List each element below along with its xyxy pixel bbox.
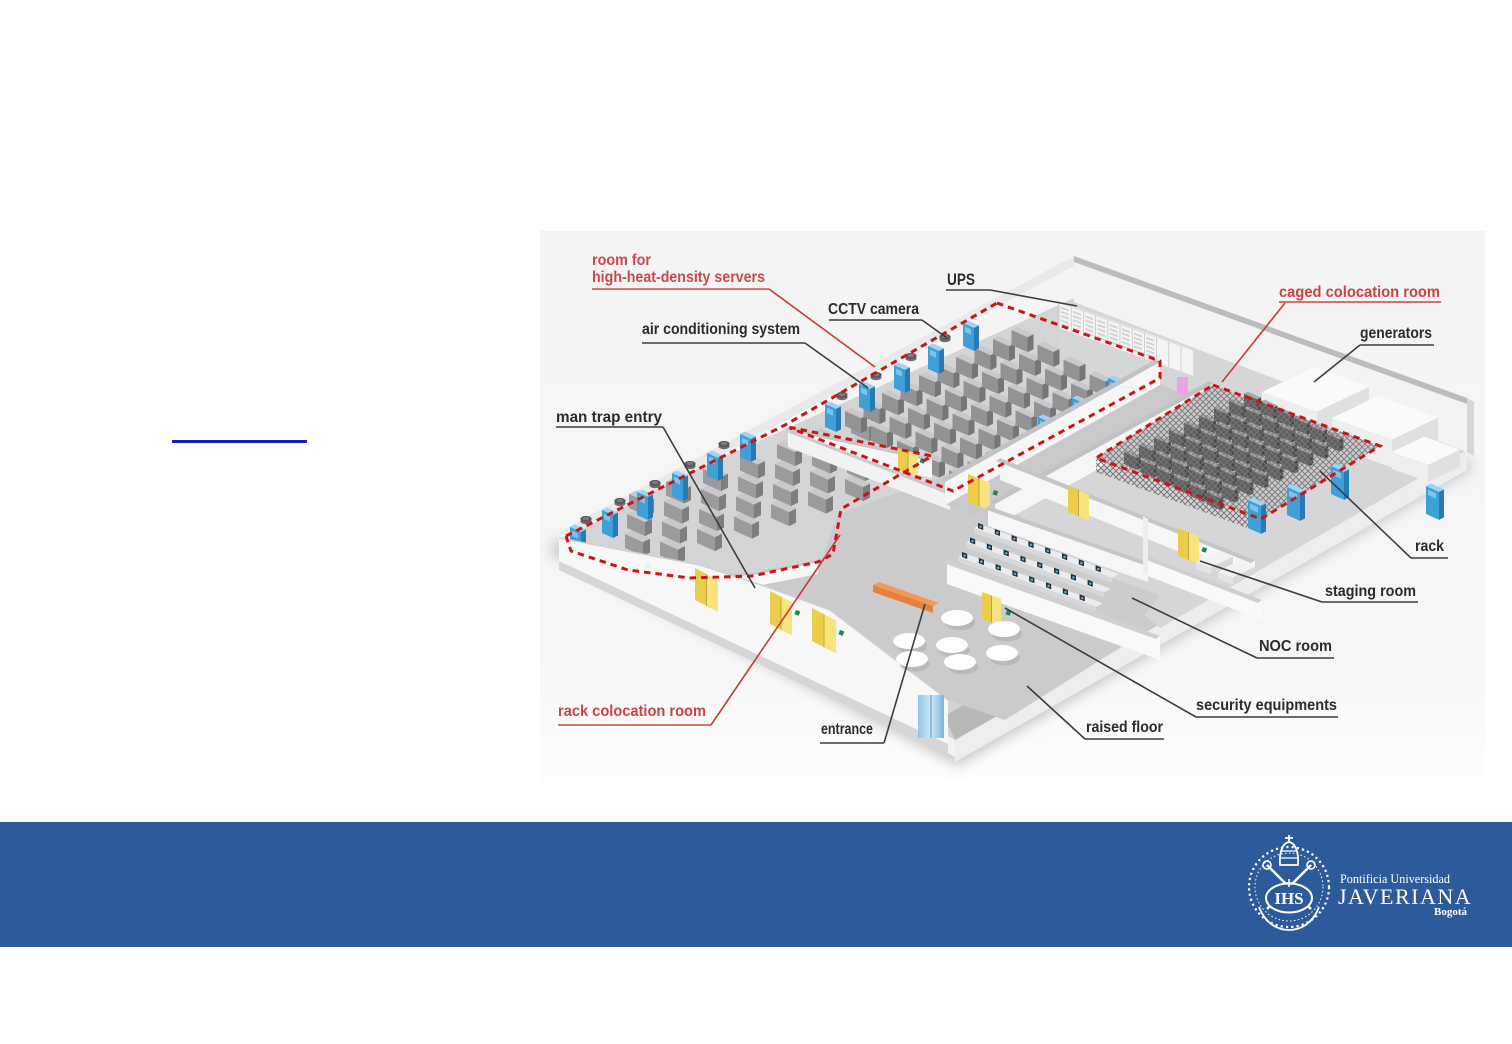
svg-text:IHS: IHS xyxy=(1274,889,1303,908)
svg-text:man trap entry: man trap entry xyxy=(556,409,662,426)
svg-text:Bogotá: Bogotá xyxy=(1434,906,1468,918)
svg-text:raised floor: raised floor xyxy=(1086,719,1163,736)
svg-text:entrance: entrance xyxy=(821,721,873,738)
svg-text:CCTV camera: CCTV camera xyxy=(828,301,919,318)
svg-text:air conditioning system: air conditioning system xyxy=(642,321,800,338)
svg-text:high-heat-density servers: high-heat-density servers xyxy=(592,269,765,286)
svg-text:UPS: UPS xyxy=(947,270,975,289)
svg-text:generators: generators xyxy=(1360,325,1432,342)
svg-text:rack: rack xyxy=(1415,538,1444,555)
svg-text:room for: room for xyxy=(592,252,651,269)
svg-text:NOC room: NOC room xyxy=(1259,638,1332,655)
svg-text:caged colocation room: caged colocation room xyxy=(1279,284,1440,301)
svg-text:staging room: staging room xyxy=(1325,583,1416,600)
svg-text:rack colocation room: rack colocation room xyxy=(558,703,706,720)
svg-text:security equipments: security equipments xyxy=(1196,697,1337,714)
